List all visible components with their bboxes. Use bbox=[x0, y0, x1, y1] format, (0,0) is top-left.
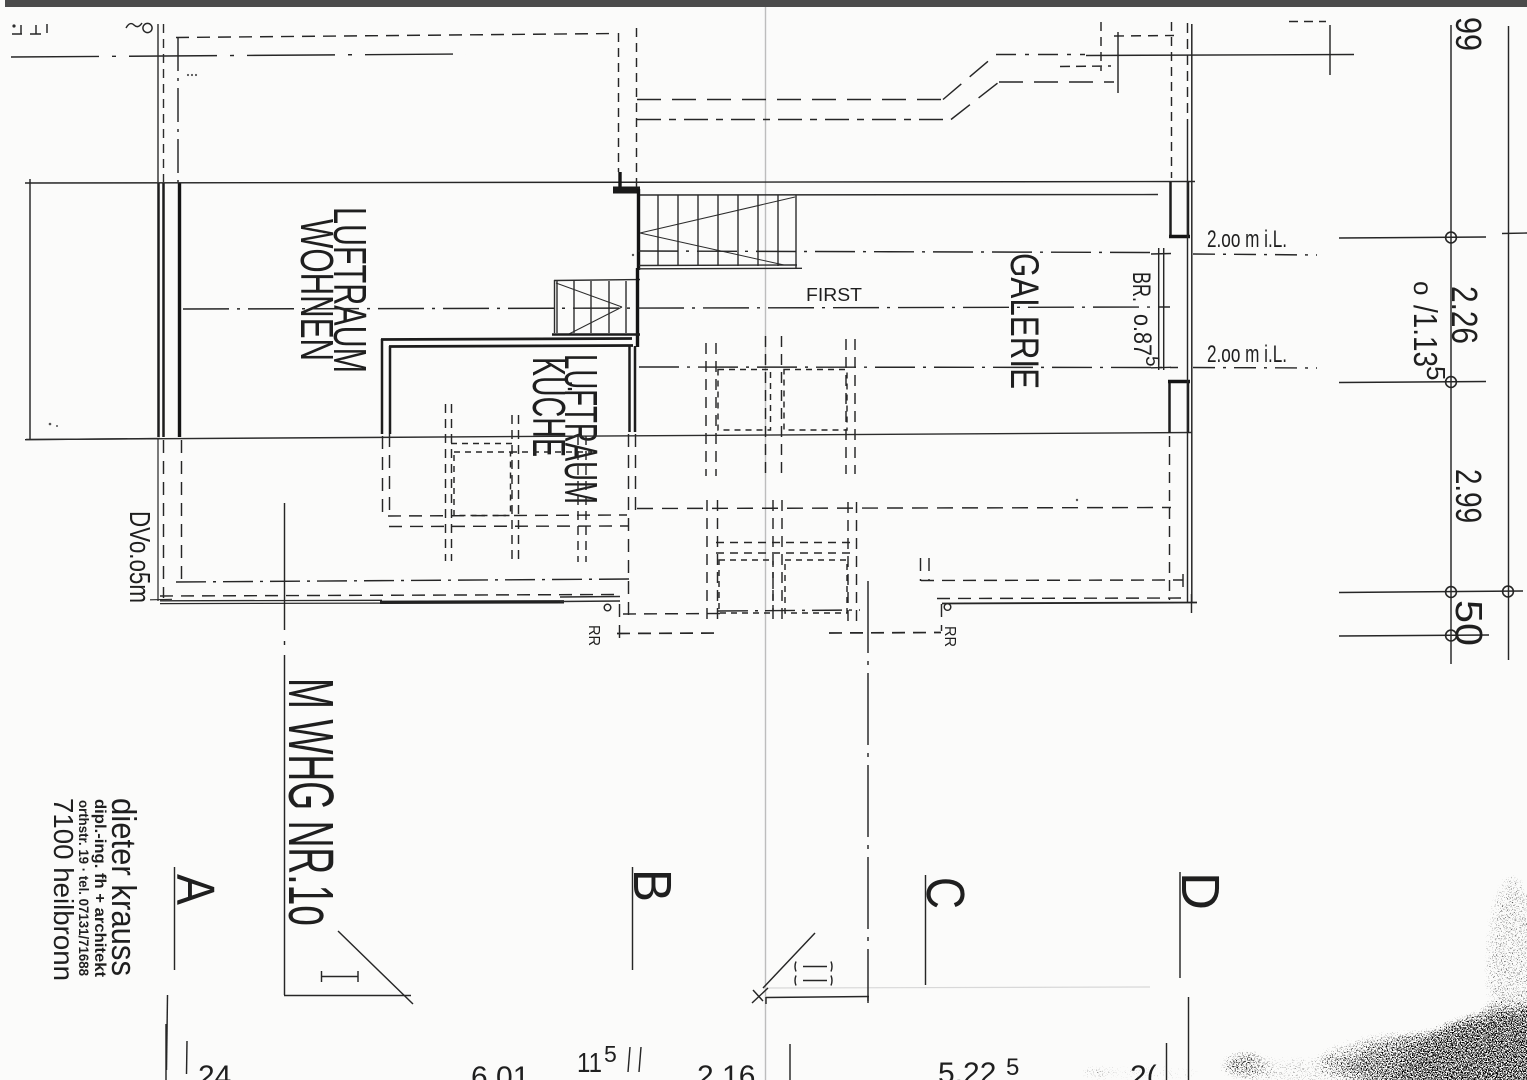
svg-text:GALERIE: GALERIE bbox=[1002, 253, 1046, 389]
svg-text:FIRST: FIRST bbox=[806, 284, 862, 305]
svg-text:M WHG NR.1o: M WHG NR.1o bbox=[275, 678, 347, 926]
svg-text:B: B bbox=[622, 869, 682, 902]
svg-text:dieter krauss: dieter krauss bbox=[104, 798, 142, 976]
svg-text:BR.: BR. bbox=[1127, 272, 1155, 302]
svg-text:24: 24 bbox=[198, 1060, 231, 1080]
svg-text:/1.13: /1.13 bbox=[1407, 305, 1444, 367]
svg-text:2.oo m i.L.: 2.oo m i.L. bbox=[1207, 341, 1287, 368]
svg-text:99: 99 bbox=[1448, 17, 1489, 51]
svg-text:C: C bbox=[915, 877, 975, 909]
svg-text:A: A bbox=[165, 874, 225, 905]
svg-text:2.26: 2.26 bbox=[1444, 286, 1485, 344]
svg-text:WOHNEN: WOHNEN bbox=[291, 219, 343, 361]
svg-text:o: o bbox=[1408, 281, 1438, 295]
svg-text:7100 heilbronn: 7100 heilbronn bbox=[48, 798, 79, 981]
svg-text:5: 5 bbox=[1421, 366, 1451, 380]
svg-text:KÜCHE: KÜCHE bbox=[523, 357, 575, 457]
svg-text:2.16: 2.16 bbox=[697, 1060, 755, 1080]
svg-text:dipl.-ing. fh + architekt: dipl.-ing. fh + architekt bbox=[91, 799, 108, 977]
svg-text:11: 11 bbox=[577, 1047, 602, 1078]
svg-text:2.oo m i.L.: 2.oo m i.L. bbox=[1207, 226, 1287, 253]
svg-text:o.87: o.87 bbox=[1128, 314, 1156, 356]
svg-text:2.99: 2.99 bbox=[1448, 469, 1489, 523]
svg-text:5.22: 5.22 bbox=[938, 1057, 996, 1080]
svg-text:5: 5 bbox=[1141, 356, 1162, 367]
svg-text:D: D bbox=[1170, 872, 1230, 910]
svg-text:RR: RR bbox=[941, 626, 958, 647]
svg-text:RR: RR bbox=[585, 625, 602, 646]
svg-text:DVo.o5m: DVo.o5m bbox=[123, 511, 155, 603]
svg-text:5: 5 bbox=[604, 1041, 617, 1067]
svg-text:6.01: 6.01 bbox=[471, 1061, 529, 1080]
svg-text:50: 50 bbox=[1447, 600, 1489, 646]
